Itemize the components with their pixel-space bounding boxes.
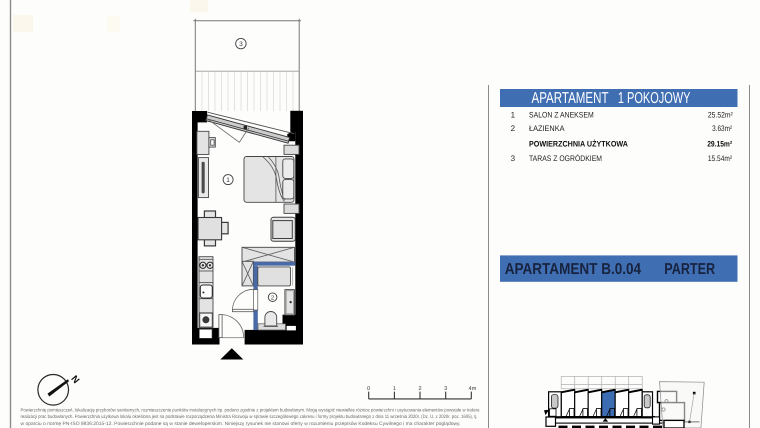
svg-text:3: 3 xyxy=(511,154,516,163)
svg-text:3: 3 xyxy=(239,41,243,48)
svg-text:ŁAZIENKA: ŁAZIENKA xyxy=(529,124,565,133)
svg-text:0: 0 xyxy=(367,386,370,392)
svg-text:29.15m²: 29.15m² xyxy=(707,140,732,149)
svg-text:2: 2 xyxy=(511,124,516,133)
svg-text:1: 1 xyxy=(226,177,230,184)
svg-text:4m: 4m xyxy=(469,386,477,392)
svg-text:1: 1 xyxy=(393,386,396,392)
svg-text:SALON Z ANEKSEM: SALON Z ANEKSEM xyxy=(529,111,594,120)
svg-text:3.63m²: 3.63m² xyxy=(712,124,732,133)
svg-text:1 POKOJOWY: 1 POKOJOWY xyxy=(618,90,691,107)
svg-text:25.52m²: 25.52m² xyxy=(708,111,733,120)
svg-text:Powierzchnię pomieszczeń, loka: Powierzchnię pomieszczeń, lokalizację pr… xyxy=(21,407,480,413)
svg-text:15.54m²: 15.54m² xyxy=(708,154,732,163)
svg-text:APARTAMENT B.0.04: APARTAMENT B.0.04 xyxy=(505,261,642,278)
svg-text:3: 3 xyxy=(444,386,447,392)
svg-text:1: 1 xyxy=(511,111,516,120)
svg-text:APARTAMENT: APARTAMENT xyxy=(532,90,609,107)
svg-text:POWIERZCHNIA UŻYTKOWA: POWIERZCHNIA UŻYTKOWA xyxy=(529,140,628,149)
svg-text:realizacji prac budowlanych. P: realizacji prac budowlanych. Powierzchni… xyxy=(21,414,478,420)
svg-text:PARTER: PARTER xyxy=(664,261,715,278)
svg-text:2: 2 xyxy=(418,386,421,392)
svg-text:TARAS Z OGRÓDKIEM: TARAS Z OGRÓDKIEM xyxy=(529,154,602,163)
svg-text:w oparciu o normę PN-ISO 9836:: w oparciu o normę PN-ISO 9836:2015-12. P… xyxy=(21,421,461,427)
svg-text:N: N xyxy=(69,374,82,386)
